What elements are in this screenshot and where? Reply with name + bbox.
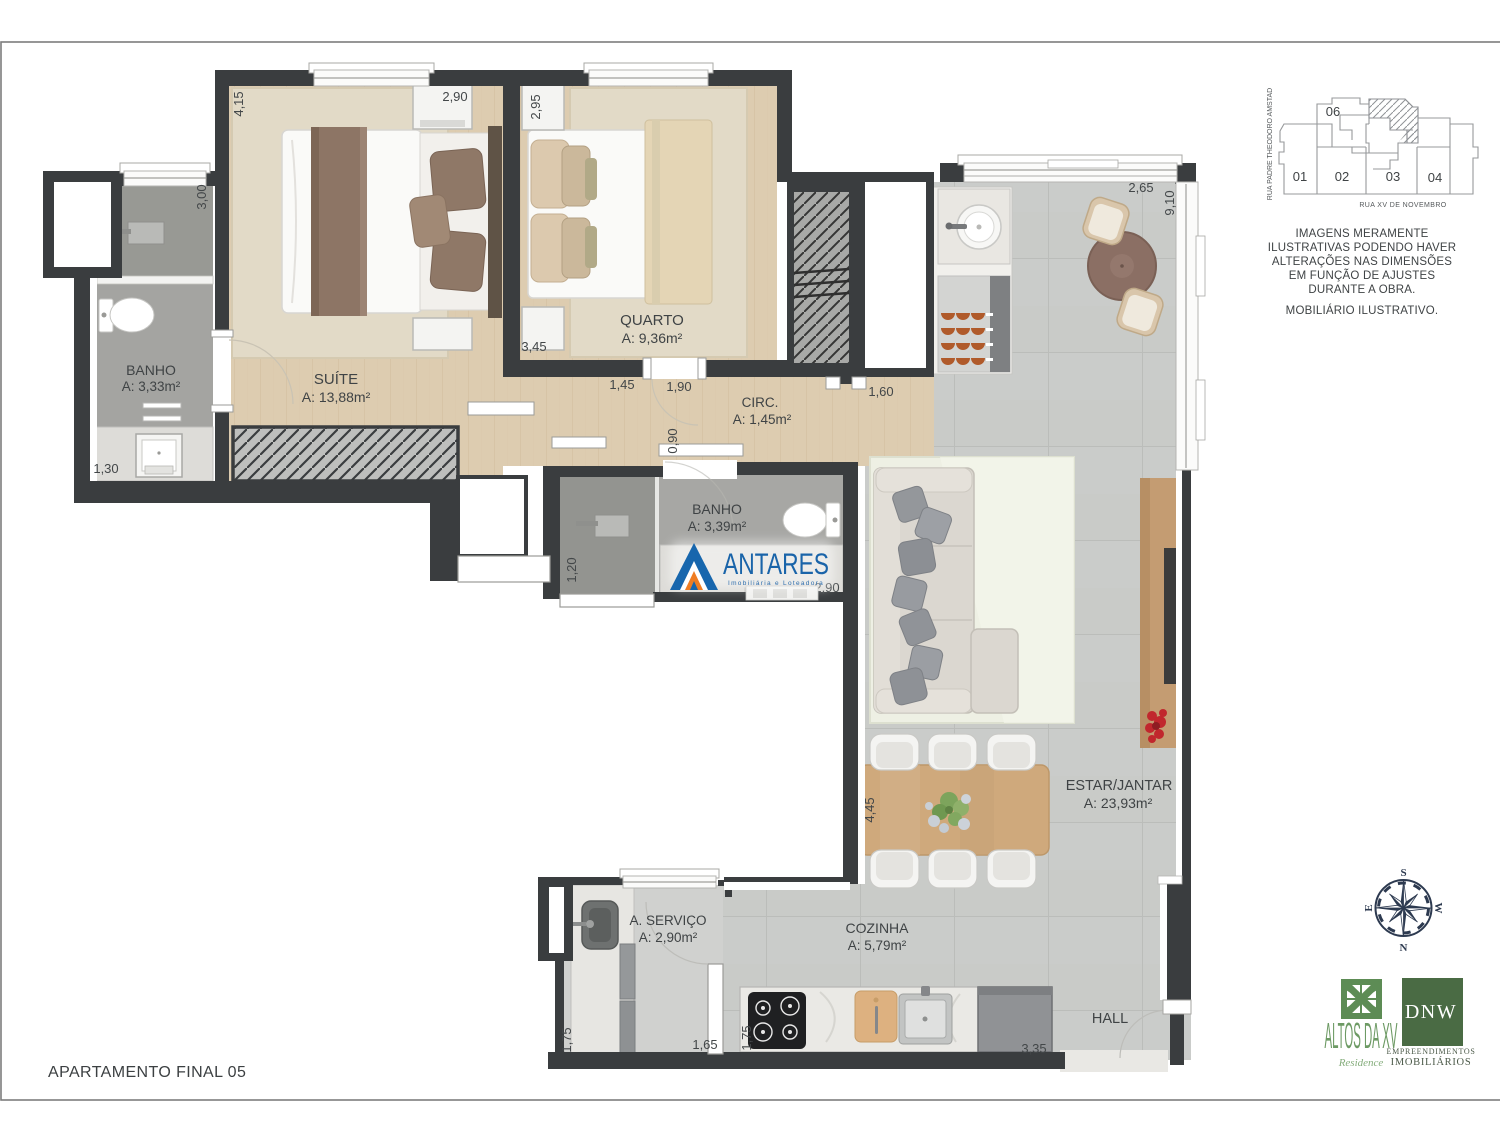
svg-text:Imobiliária e Loteadora: Imobiliária e Loteadora	[728, 580, 824, 587]
svg-text:A. SERVIÇO: A. SERVIÇO	[629, 913, 706, 928]
svg-text:1,75: 1,75	[739, 1025, 754, 1050]
svg-text:3,45: 3,45	[521, 339, 546, 354]
svg-text:N: N	[1400, 942, 1408, 954]
svg-text:01: 01	[1293, 169, 1307, 184]
svg-text:1,45: 1,45	[609, 377, 634, 392]
svg-text:IMOBILIÁRIOS: IMOBILIÁRIOS	[1391, 1056, 1472, 1068]
svg-text:1,90: 1,90	[666, 379, 691, 394]
svg-text:06: 06	[1326, 104, 1340, 119]
svg-text:MOBILIÁRIO ILUSTRATIVO.: MOBILIÁRIO ILUSTRATIVO.	[1286, 304, 1439, 317]
svg-text:A: 9,36m²: A: 9,36m²	[622, 330, 683, 346]
svg-text:S: S	[1400, 867, 1406, 879]
svg-text:CIRC.: CIRC.	[742, 395, 779, 410]
svg-text:02: 02	[1335, 169, 1349, 184]
svg-text:9,10: 9,10	[1162, 190, 1177, 215]
svg-text:A: 13,88m²: A: 13,88m²	[302, 389, 371, 405]
svg-text:A: 3,33m²: A: 3,33m²	[122, 379, 181, 394]
svg-text:E: E	[1363, 904, 1375, 911]
svg-text:RUA PADRE THEODORO AMSTAD: RUA PADRE THEODORO AMSTAD	[1267, 88, 1274, 200]
svg-text:1,75: 1,75	[559, 1027, 574, 1052]
svg-text:1,30: 1,30	[93, 461, 118, 476]
svg-text:A: 2,90m²: A: 2,90m²	[639, 930, 698, 945]
svg-text:3,35: 3,35	[1021, 1041, 1046, 1056]
svg-text:W: W	[1432, 903, 1444, 914]
svg-text:ALTERAÇÕES NAS DIMENSÕES: ALTERAÇÕES NAS DIMENSÕES	[1272, 255, 1452, 268]
svg-text:HALL: HALL	[1092, 1011, 1128, 1027]
svg-text:1,65: 1,65	[692, 1037, 717, 1052]
svg-text:04: 04	[1428, 170, 1442, 185]
svg-text:4,15: 4,15	[231, 91, 246, 116]
svg-text:ILUSTRATIVAS PODENDO HAVER: ILUSTRATIVAS PODENDO HAVER	[1268, 242, 1457, 254]
svg-text:EMPREENDIMENTOS: EMPREENDIMENTOS	[1386, 1047, 1475, 1056]
svg-text:A: 23,93m²: A: 23,93m²	[1084, 795, 1153, 811]
svg-text:0,90: 0,90	[665, 428, 680, 453]
svg-text:BANHO: BANHO	[692, 501, 742, 517]
svg-text:APARTAMENTO FINAL 05: APARTAMENTO FINAL 05	[48, 1064, 246, 1081]
svg-text:ANTARES: ANTARES	[723, 548, 829, 581]
svg-text:COZINHA: COZINHA	[846, 920, 910, 936]
svg-text:3,00: 3,00	[194, 184, 209, 209]
svg-text:4,45: 4,45	[862, 797, 877, 822]
svg-text:03: 03	[1386, 169, 1400, 184]
svg-text:IMAGENS MERAMENTE: IMAGENS MERAMENTE	[1295, 228, 1428, 240]
svg-text:2,65: 2,65	[1128, 180, 1153, 195]
svg-text:A: 5,79m²: A: 5,79m²	[848, 938, 907, 953]
svg-text:A: 3,39m²: A: 3,39m²	[688, 519, 747, 534]
svg-text:EM FUNÇÃO DE AJUSTES: EM FUNÇÃO DE AJUSTES	[1289, 269, 1436, 282]
svg-text:Residence: Residence	[1338, 1057, 1384, 1069]
svg-text:ESTAR/JANTAR: ESTAR/JANTAR	[1066, 778, 1173, 794]
svg-text:A: 1,45m²: A: 1,45m²	[733, 412, 792, 427]
svg-text:SUÍTE: SUÍTE	[314, 371, 358, 388]
svg-text:DURANTE A OBRA.: DURANTE A OBRA.	[1308, 284, 1415, 296]
svg-text:2,95: 2,95	[528, 94, 543, 119]
svg-text:1,20: 1,20	[564, 557, 579, 582]
svg-text:DNW: DNW	[1405, 1001, 1457, 1023]
svg-text:QUARTO: QUARTO	[620, 312, 684, 329]
svg-text:RUA XV DE NOVEMBRO: RUA XV DE NOVEMBRO	[1359, 202, 1446, 209]
svg-text:BANHO: BANHO	[126, 362, 176, 378]
svg-text:1,60: 1,60	[868, 384, 893, 399]
svg-text:2,90: 2,90	[442, 89, 467, 104]
